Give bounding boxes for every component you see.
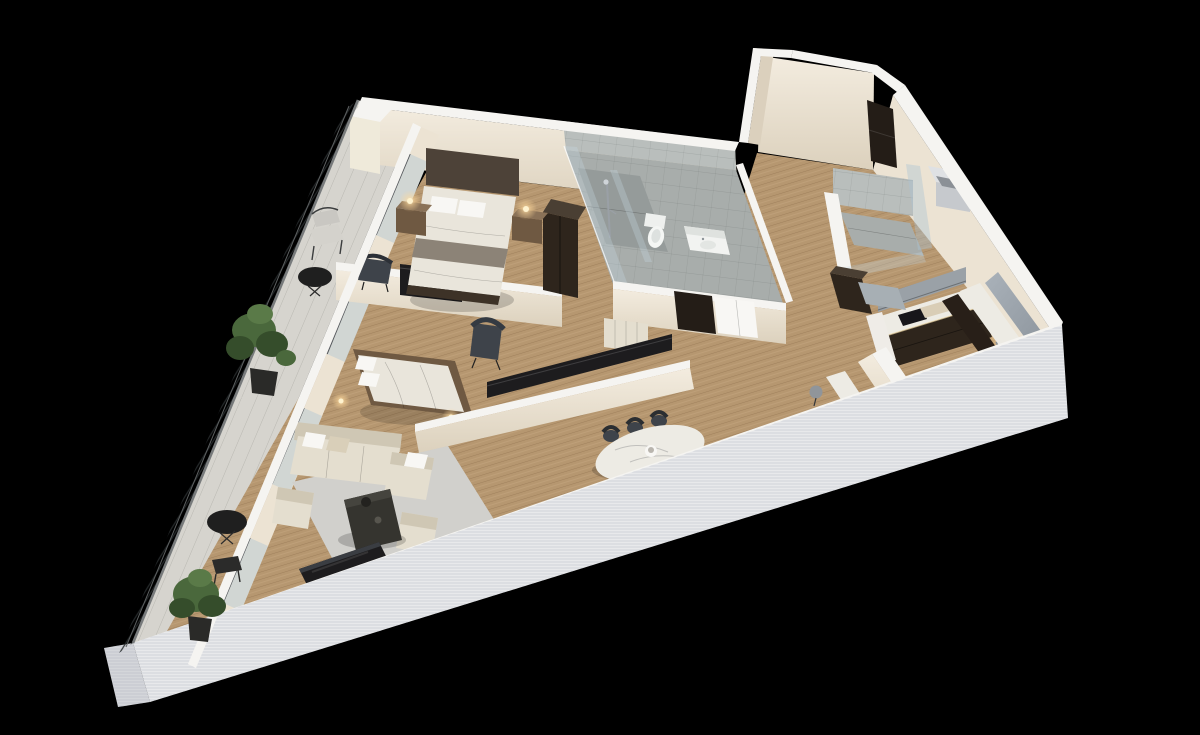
entry-north-wall-face	[758, 56, 874, 170]
pillow	[302, 432, 326, 449]
pillow	[326, 436, 350, 453]
floorplan-stage	[0, 0, 1200, 735]
hall-closet-door-white	[714, 297, 758, 338]
armchair-left	[272, 487, 314, 529]
table-vase	[361, 497, 371, 507]
table-bowl	[375, 517, 382, 524]
hall-closet-door-dark	[674, 291, 716, 334]
pillow	[457, 200, 486, 218]
floorplan-render	[0, 0, 1200, 735]
pillow	[404, 452, 428, 469]
pillow	[429, 196, 458, 214]
entry-door	[867, 100, 897, 168]
